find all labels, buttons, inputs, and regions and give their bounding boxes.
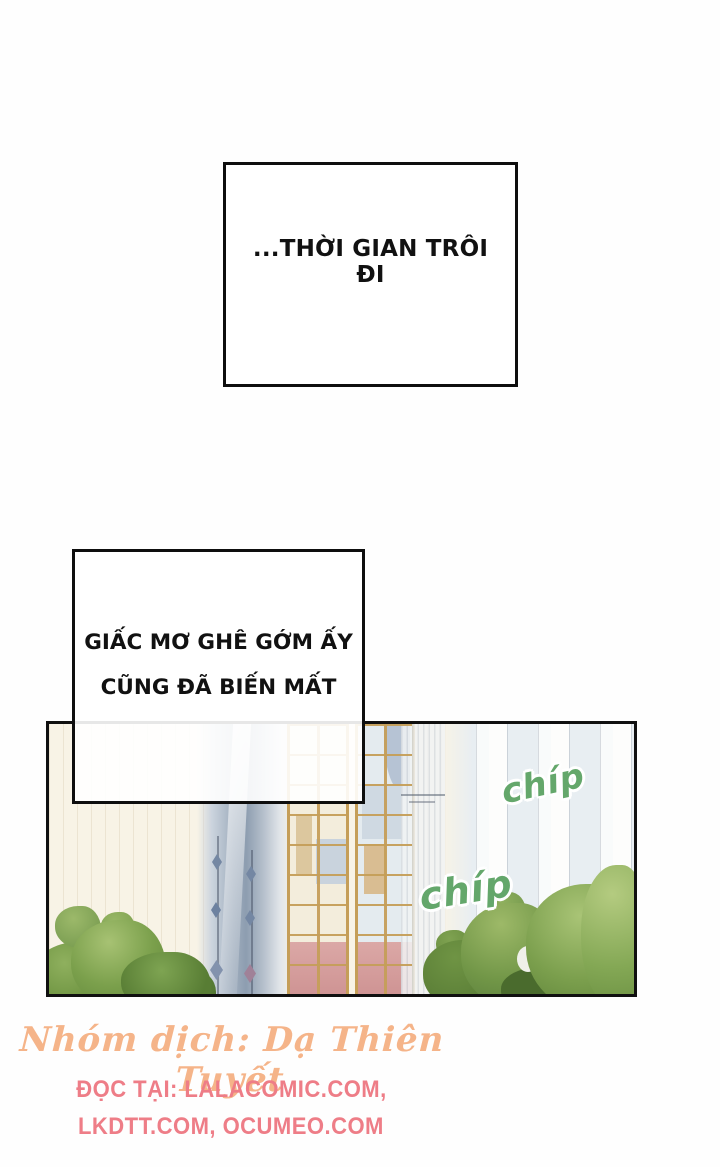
translator-credits: Nhóm dịch: Dạ Thiên Tuyết ĐỌC TẠI: LALAC… [0,1020,462,1155]
bush-left [46,888,213,997]
window-interior-art [362,784,402,839]
caption-text-line1: GIẤC MƠ GHÊ GỚM ẤY [84,621,353,665]
comic-page: chíp chíp ...THỜI GIAN TRÔI ĐI GIẤC MƠ G… [0,0,720,1167]
caption-box-dream: GIẤC MƠ GHÊ GỚM ẤY CŨNG ĐÃ BIẾN MẤT [72,549,365,804]
read-at-text-1: ĐỌC TẠI: LALACOMIC.COM, [76,1076,386,1104]
read-at-line-2: LKDTT.COM, OCUMEO.COM [0,1113,462,1141]
bush-blob [121,952,211,997]
read-at-text-2: LKDTT.COM, OCUMEO.COM [78,1113,384,1141]
caption-box-time: ...THỜI GIAN TRÔI ĐI [223,162,518,387]
window-curtain-art [384,724,410,794]
caption-text: ...THỜI GIAN TRÔI ĐI [236,236,505,288]
window-interior-art [316,839,346,884]
read-at-line-1: ĐỌC TẠI: LALACOMIC.COM, [0,1076,462,1104]
window-interior-art [364,844,386,894]
pink-floor-art [358,942,412,994]
caption-text-line2: CŨNG ĐÃ BIẾN MẤT [101,666,337,710]
window-interior-art [296,814,312,874]
pink-floor-art [290,942,346,994]
column-tick-art [409,801,435,803]
